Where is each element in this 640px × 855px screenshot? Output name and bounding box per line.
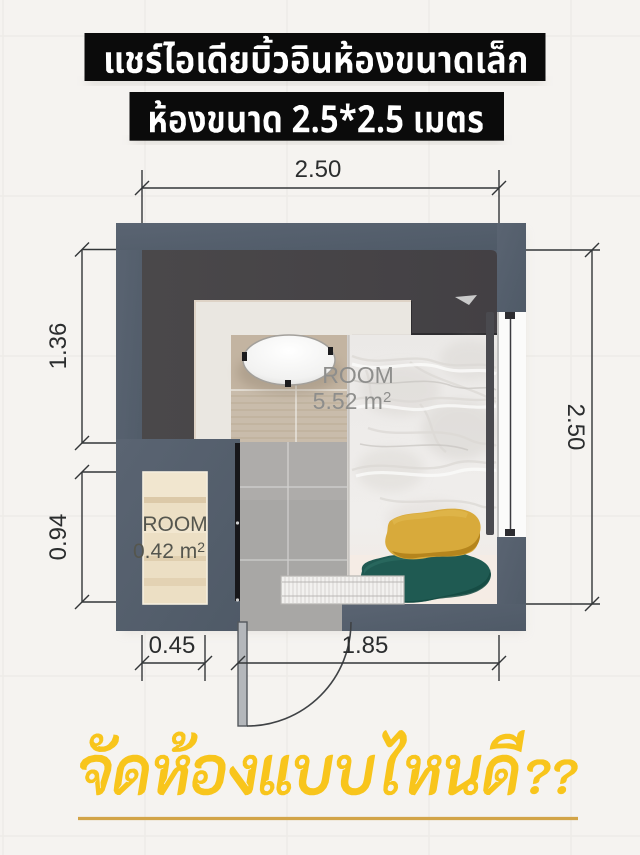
svg-text:ROOM: ROOM	[142, 513, 207, 536]
svg-text:0.42 m2: 0.42 m2	[133, 539, 205, 563]
svg-text:0.94: 0.94	[45, 514, 72, 561]
svg-text:5.52 m2: 5.52 m2	[313, 388, 392, 414]
svg-text:2.50: 2.50	[562, 404, 589, 451]
svg-text:1.36: 1.36	[45, 323, 72, 370]
svg-text:0.45: 0.45	[149, 632, 196, 659]
svg-text:ROOM: ROOM	[322, 362, 394, 388]
svg-text:2.50: 2.50	[295, 156, 342, 183]
svg-text:1.85: 1.85	[342, 632, 389, 659]
